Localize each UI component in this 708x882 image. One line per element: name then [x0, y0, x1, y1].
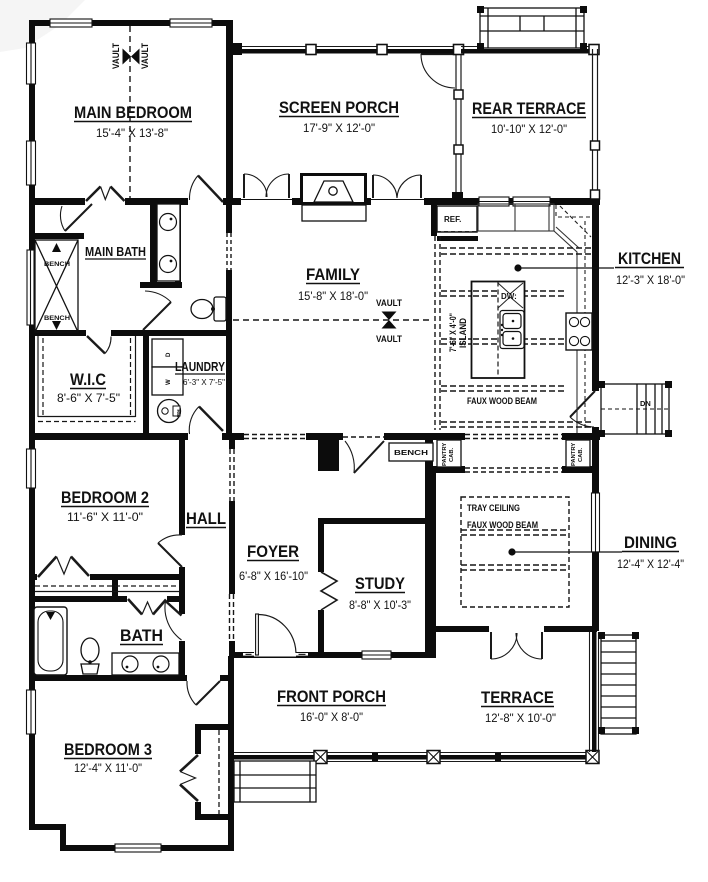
svg-text:REF.: REF. [444, 215, 461, 224]
svg-text:8'-6" X 7'-5": 8'-6" X 7'-5" [57, 391, 120, 405]
svg-text:FAUX WOOD BEAM: FAUX WOOD BEAM [467, 520, 538, 531]
svg-text:TERRACE: TERRACE [481, 688, 554, 707]
svg-text:CAB.: CAB. [578, 447, 584, 462]
svg-text:6'-8" X 16'-10": 6'-8" X 16'-10" [239, 569, 308, 583]
svg-text:ISLAND: ISLAND [458, 318, 469, 348]
svg-text:17'-9" X 12'-0": 17'-9" X 12'-0" [303, 121, 375, 135]
svg-text:VAULT: VAULT [140, 43, 150, 69]
svg-text:DW:: DW: [501, 292, 517, 301]
svg-text:7'-6" X 4'-0": 7'-6" X 4'-0" [448, 313, 458, 352]
svg-text:MAIN BATH: MAIN BATH [85, 244, 146, 259]
svg-text:TRAY CEILING: TRAY CEILING [467, 503, 520, 514]
svg-text:FOYER: FOYER [247, 542, 299, 561]
svg-text:15'-4" X 13'-8": 15'-4" X 13'-8" [96, 126, 168, 140]
svg-text:FAMILY: FAMILY [306, 265, 361, 284]
svg-text:REAR TERRACE: REAR TERRACE [472, 99, 586, 118]
svg-text:12'-4" X 11'-0": 12'-4" X 11'-0" [74, 761, 142, 775]
svg-text:VAULT: VAULT [376, 298, 402, 308]
svg-text:LAUNDRY: LAUNDRY [175, 360, 226, 374]
svg-text:12'-4" X 12'-4": 12'-4" X 12'-4" [617, 557, 684, 571]
svg-text:BATH: BATH [120, 626, 163, 645]
svg-text:SCREEN PORCH: SCREEN PORCH [279, 98, 399, 117]
svg-text:VAULT: VAULT [376, 334, 402, 344]
svg-text:10'-10" X 12'-0": 10'-10" X 12'-0" [491, 122, 567, 136]
svg-text:16'-0" X 8'-0": 16'-0" X 8'-0" [300, 710, 363, 724]
svg-text:11'-6" X 11'-0": 11'-6" X 11'-0" [67, 510, 143, 524]
svg-text:BEDROOM 3: BEDROOM 3 [64, 740, 152, 759]
svg-text:MAIN BEDROOM: MAIN BEDROOM [74, 103, 192, 122]
svg-text:W.I.C: W.I.C [70, 370, 106, 389]
svg-text:BEDROOM 2: BEDROOM 2 [61, 488, 149, 507]
svg-text:6'-3" X 7'-5": 6'-3" X 7'-5" [183, 377, 225, 387]
svg-text:PANTRY: PANTRY [442, 443, 448, 466]
svg-text:12'-8" X 10'-0": 12'-8" X 10'-0" [485, 711, 556, 725]
svg-text:HALL: HALL [186, 509, 226, 528]
svg-text:PANTRY: PANTRY [571, 443, 577, 466]
svg-text:BENCH: BENCH [44, 261, 70, 268]
svg-text:DINING: DINING [624, 533, 677, 552]
svg-text:DN: DN [640, 399, 651, 408]
svg-text:KITCHEN: KITCHEN [618, 249, 681, 268]
svg-text:15'-8" X 18'-0": 15'-8" X 18'-0" [298, 289, 368, 303]
svg-text:BENCH: BENCH [394, 448, 428, 457]
svg-text:STUDY: STUDY [355, 574, 406, 593]
svg-text:VAULT: VAULT [111, 43, 121, 69]
svg-text:BENCH: BENCH [44, 315, 70, 322]
svg-text:FRONT PORCH: FRONT PORCH [277, 687, 386, 706]
svg-text:W: W [166, 379, 172, 385]
svg-text:12'-3" X 18'-0": 12'-3" X 18'-0" [616, 273, 685, 287]
svg-text:D: D [166, 352, 172, 357]
svg-text:8'-8" X 10'-3": 8'-8" X 10'-3" [349, 598, 411, 612]
svg-text:WH: WH [176, 410, 181, 418]
svg-text:CAB.: CAB. [449, 447, 455, 462]
svg-text:FAUX WOOD BEAM: FAUX WOOD BEAM [467, 396, 537, 407]
